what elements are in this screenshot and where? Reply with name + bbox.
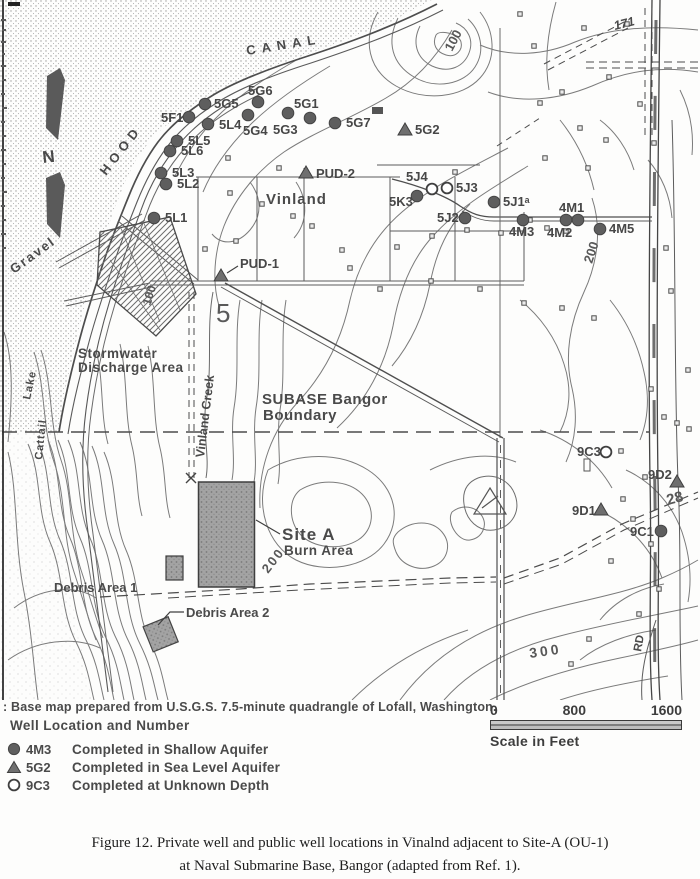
map-label: 100 xyxy=(441,27,464,53)
well-marker-filled-circle xyxy=(164,145,176,157)
map-label: 5 xyxy=(216,298,230,328)
well-9C3: 9C3 xyxy=(577,444,611,459)
building xyxy=(518,12,522,16)
figure-page: 5G65G55G15F15L45G45G35G75G25L55L65L35L25… xyxy=(0,0,700,879)
scale-tick-0: 0 xyxy=(490,702,498,718)
well-label: 5J4 xyxy=(406,169,428,184)
building xyxy=(340,248,344,252)
well-5G5: 5G5 xyxy=(199,96,238,111)
well-marker-filled-circle xyxy=(488,196,500,208)
well-5F1: 5F1 xyxy=(161,110,195,125)
site-a-leader-line xyxy=(256,520,280,534)
building xyxy=(465,228,469,232)
building xyxy=(619,449,623,453)
building xyxy=(664,246,668,250)
well-label: 5G3 xyxy=(273,122,298,137)
map-label: Vinland xyxy=(266,191,327,208)
legend-code: 4M3 xyxy=(26,742,72,757)
well-label: 5K3 xyxy=(389,194,413,209)
well-label: 5J3 xyxy=(456,180,478,195)
well-label: 5F1 xyxy=(161,110,183,125)
small-structure xyxy=(584,459,590,471)
well-5J1ᵃ: 5J1ᵃ xyxy=(488,194,529,209)
building xyxy=(675,421,679,425)
building xyxy=(453,170,457,174)
well-marker-filled-circle xyxy=(411,190,423,202)
map-label: Debris Area 2 xyxy=(186,605,269,620)
building xyxy=(621,497,625,501)
well-PUD-1: PUD-1 xyxy=(214,256,279,281)
well-5G3: 5G3 xyxy=(273,107,298,137)
building xyxy=(538,101,542,105)
building xyxy=(395,245,399,249)
map-label: N xyxy=(41,147,55,167)
well-marker-filled-circle xyxy=(160,178,172,190)
legend-row-unknown: 9C3 Completed at Unknown Depth xyxy=(6,776,269,794)
triangle-icon xyxy=(6,759,26,775)
legend-title: Well Location and Number xyxy=(10,718,190,733)
building xyxy=(560,90,564,94)
map-label: Burn Area xyxy=(284,543,353,558)
filled-circle-icon xyxy=(6,741,26,757)
map-label: 171 xyxy=(612,14,636,33)
building xyxy=(522,301,526,305)
well-marker-filled-circle xyxy=(242,109,254,121)
well-marker-filled-circle xyxy=(329,117,341,129)
scale-bar-rect xyxy=(490,720,682,730)
well-marker-filled-circle xyxy=(655,525,667,537)
building xyxy=(348,266,352,270)
building xyxy=(234,239,238,243)
map-label: 200 xyxy=(581,240,602,265)
map-label: 300 xyxy=(528,641,562,661)
well-marker-filled-circle xyxy=(155,167,167,179)
building xyxy=(582,26,586,30)
building xyxy=(499,231,503,235)
building xyxy=(662,415,666,419)
well-label: 5G6 xyxy=(248,83,273,98)
well-label: 5L6 xyxy=(181,143,203,158)
well-4M2: 4M2 xyxy=(547,214,572,240)
map-image: 5G65G55G15F15L45G45G35G75G25L55L65L35L25… xyxy=(0,0,700,700)
tank-triangle-symbol xyxy=(474,488,506,514)
well-marker-open-circle xyxy=(427,184,438,195)
well-5J4: 5J4 xyxy=(406,169,437,194)
debris-area-1-rect xyxy=(166,556,183,580)
well-5J3: 5J3 xyxy=(442,180,478,195)
well-label: 9C3 xyxy=(577,444,601,459)
building xyxy=(291,214,295,218)
building xyxy=(560,306,564,310)
site-a-burn-area-rect xyxy=(199,482,255,587)
well-label: 4M3 xyxy=(509,224,534,239)
small-dark-structure xyxy=(372,107,383,114)
building xyxy=(260,202,264,206)
building xyxy=(643,475,647,479)
figure-caption: Figure 12. Private well and public well … xyxy=(0,832,700,877)
map-label: RD xyxy=(632,634,647,652)
well-marker-filled-circle xyxy=(572,214,584,226)
caption-line-2: at Naval Submarine Base, Bangor (adapted… xyxy=(0,855,700,878)
well-9D1: 9D1 xyxy=(572,503,608,518)
well-label: 5L4 xyxy=(219,117,242,132)
well-marker-triangle xyxy=(594,503,608,515)
legend-desc: Completed at Unknown Depth xyxy=(72,778,269,793)
well-5G4: 5G4 xyxy=(242,109,268,138)
well-4M5: 4M5 xyxy=(594,221,634,236)
well-marker-filled-circle xyxy=(199,98,211,110)
building xyxy=(609,559,613,563)
well-marker-triangle xyxy=(398,123,412,135)
scale-bar-label: Scale in Feet xyxy=(490,733,682,749)
well-label: 5L1 xyxy=(165,210,187,225)
well-marker-triangle xyxy=(670,475,684,487)
well-marker-filled-circle xyxy=(304,112,316,124)
well-marker-filled-circle xyxy=(183,111,195,123)
building xyxy=(652,141,656,145)
caption-line-1: Figure 12. Private well and public well … xyxy=(0,832,700,855)
map-label: Stormwater xyxy=(78,346,158,361)
legend-code: 9C3 xyxy=(26,778,72,793)
well-label: 9D1 xyxy=(572,503,596,518)
building xyxy=(649,387,653,391)
building xyxy=(578,126,582,130)
building xyxy=(687,427,691,431)
building xyxy=(429,279,433,283)
building xyxy=(657,587,661,591)
well-marker-triangle xyxy=(299,166,313,178)
building xyxy=(430,234,434,238)
well-label: 4M2 xyxy=(547,225,572,240)
map-label: Vinland Creek xyxy=(193,374,217,458)
well-5L1: 5L1 xyxy=(148,210,187,225)
open-circle-icon xyxy=(6,777,26,793)
well-5K3: 5K3 xyxy=(389,190,423,209)
building xyxy=(228,191,232,195)
well-label: 9C1 xyxy=(630,524,654,539)
building xyxy=(604,138,608,142)
well-label: 9D2 xyxy=(648,467,672,482)
well-label: 5G2 xyxy=(415,122,440,137)
well-marker-triangle xyxy=(214,269,228,281)
well-label: 4M5 xyxy=(609,221,634,236)
building xyxy=(686,368,690,372)
well-marker-filled-circle xyxy=(148,212,160,224)
pud-1-leader-line xyxy=(227,266,238,273)
map-label: SUBASE Bangor xyxy=(262,391,388,408)
map-label: Boundary xyxy=(263,407,337,424)
building xyxy=(226,156,230,160)
well-5J2: 5J2 xyxy=(437,210,471,225)
tank-contour xyxy=(464,476,517,530)
well-label: 5G1 xyxy=(294,96,319,111)
building xyxy=(310,224,314,228)
scale-ticks: 0 800 1600 xyxy=(490,702,682,718)
well-marker-filled-circle xyxy=(594,223,606,235)
well-label: 5G7 xyxy=(346,115,371,130)
legend-desc: Completed in Shallow Aquifer xyxy=(72,742,268,757)
building xyxy=(203,247,207,251)
scale-tick-1600: 1600 xyxy=(651,702,682,718)
stormwater-discharge-area xyxy=(97,217,196,336)
map-label: 28 xyxy=(665,488,686,509)
legend-code: 5G2 xyxy=(26,760,72,775)
building xyxy=(587,637,591,641)
building xyxy=(649,542,653,546)
topographic-map: 5G65G55G15F15L45G45G35G75G25L55L65L35L25… xyxy=(0,0,700,700)
building xyxy=(637,612,641,616)
building xyxy=(532,44,536,48)
building xyxy=(586,166,590,170)
building xyxy=(638,102,642,106)
building xyxy=(569,662,573,666)
well-marker-filled-circle xyxy=(282,107,294,119)
building xyxy=(631,517,635,521)
well-PUD-2: PUD-2 xyxy=(299,166,355,181)
scale-bar: 0 800 1600 Scale in Feet xyxy=(490,702,682,749)
scale-tick-800: 800 xyxy=(563,702,586,718)
building xyxy=(378,287,382,291)
well-marker-filled-circle xyxy=(459,212,471,224)
well-marker-open-circle xyxy=(601,447,612,458)
well-label: 4M1 xyxy=(559,200,584,215)
base-map-note: : Base map prepared from U.S.G.S. 7.5-mi… xyxy=(3,700,497,714)
well-label: 5G5 xyxy=(214,96,239,111)
map-label: Site A xyxy=(282,525,336,544)
map-label: Debris Area 1 xyxy=(54,580,137,595)
well-9C1: 9C1 xyxy=(630,524,667,539)
well-label: PUD-2 xyxy=(316,166,355,181)
building xyxy=(607,75,611,79)
well-label: 5J1ᵃ xyxy=(503,194,530,209)
building xyxy=(277,166,281,170)
legend-desc: Completed in Sea Level Aquifer xyxy=(72,760,280,775)
legend-row-shallow: 4M3 Completed in Shallow Aquifer xyxy=(6,740,268,758)
well-5G2: 5G2 xyxy=(398,122,440,137)
well-5G7: 5G7 xyxy=(329,115,370,130)
building xyxy=(478,287,482,291)
well-5G6: 5G6 xyxy=(248,83,273,108)
well-5L4: 5L4 xyxy=(202,117,242,132)
well-marker-open-circle xyxy=(442,183,453,194)
well-5G1: 5G1 xyxy=(294,96,319,124)
building xyxy=(669,289,673,293)
well-5L2: 5L2 xyxy=(160,176,199,191)
legend-row-sealevel: 5G2 Completed in Sea Level Aquifer xyxy=(6,758,280,776)
well-marker-filled-circle xyxy=(202,118,214,130)
well-5L6: 5L6 xyxy=(164,143,203,158)
well-label: 5J2 xyxy=(437,210,459,225)
well-label: 5G4 xyxy=(243,123,268,138)
well-label: 5L2 xyxy=(177,176,199,191)
well-label: PUD-1 xyxy=(240,256,279,271)
building xyxy=(592,316,596,320)
building xyxy=(543,156,547,160)
map-label: Discharge Area xyxy=(78,360,184,375)
